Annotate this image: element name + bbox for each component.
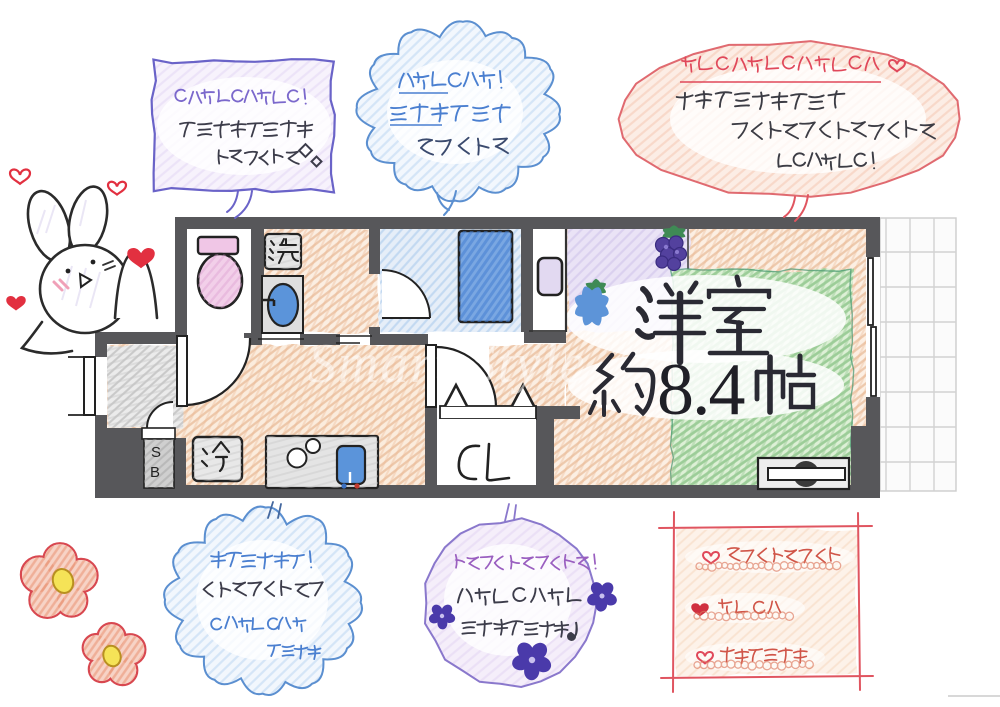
svg-text:Smart Style: Smart Style: [308, 333, 587, 395]
svg-text:B: B: [150, 464, 160, 481]
svg-text:8.4: 8.4: [657, 349, 745, 431]
svg-text:S: S: [151, 444, 161, 461]
